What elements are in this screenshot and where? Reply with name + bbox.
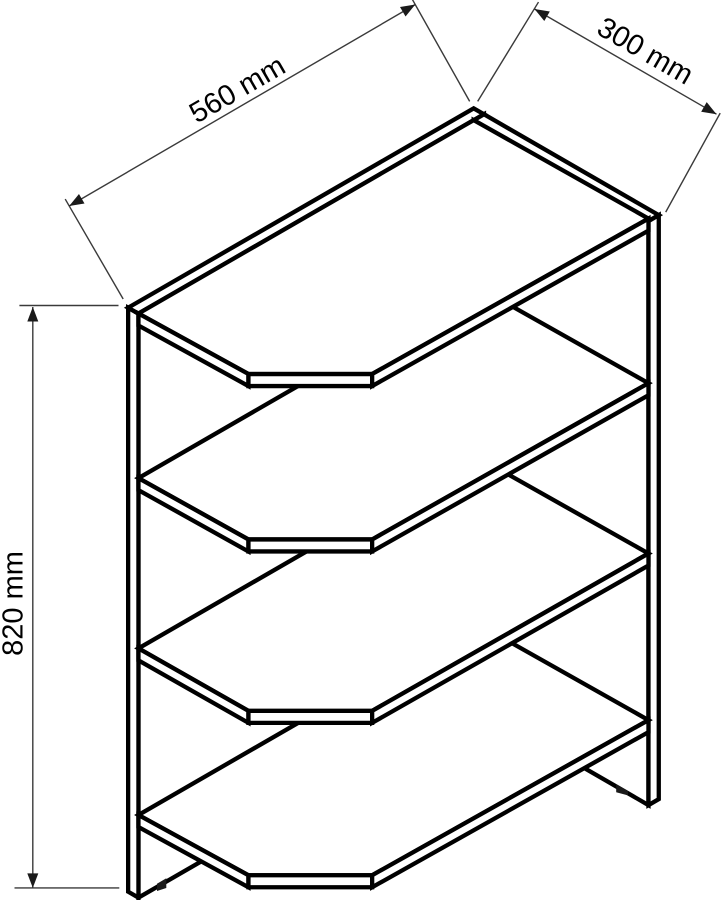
svg-text:820 mm: 820 mm <box>0 551 29 656</box>
